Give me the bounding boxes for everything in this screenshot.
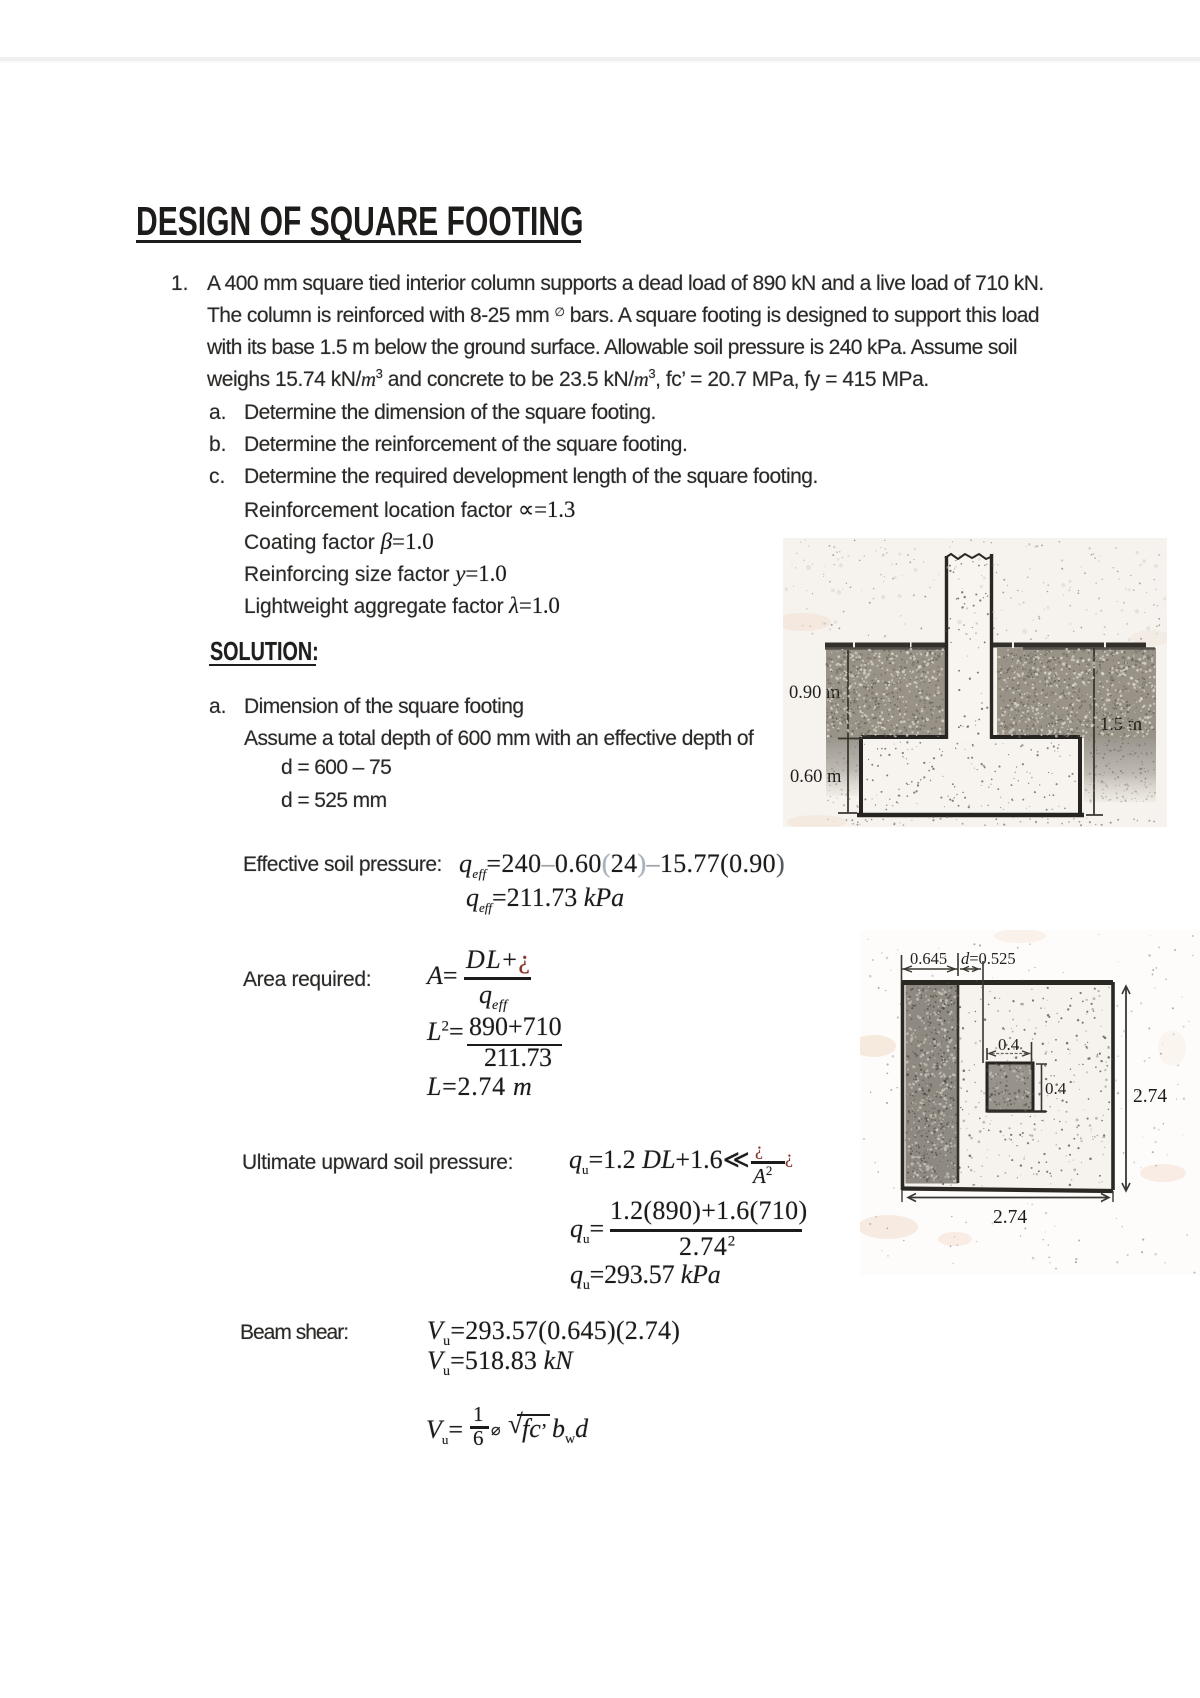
- svg-text:d=0.525: d=0.525: [961, 949, 1016, 968]
- svg-text:2.74: 2.74: [993, 1207, 1027, 1228]
- svg-text:0.60 m: 0.60 m: [790, 767, 842, 787]
- svg-text:0.645: 0.645: [910, 949, 947, 968]
- svg-text:2.74: 2.74: [1133, 1086, 1167, 1107]
- svg-text:0.4: 0.4: [1045, 1079, 1067, 1098]
- svg-text:0.4: 0.4: [998, 1035, 1020, 1054]
